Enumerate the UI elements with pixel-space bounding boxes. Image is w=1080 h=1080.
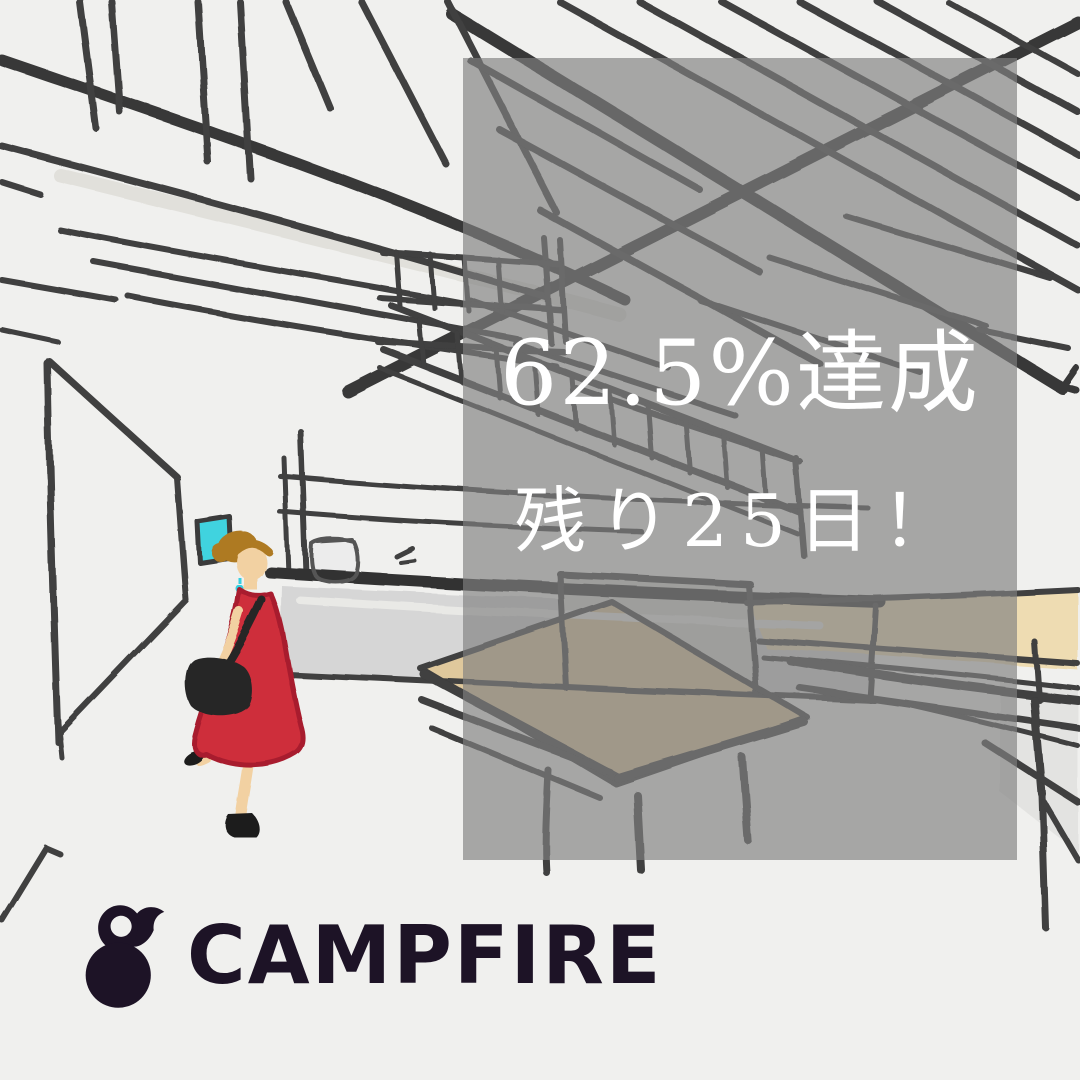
progress-achieved-text: 62.5%達成: [463, 324, 1017, 423]
left-wall: [2, 362, 186, 920]
campfire-logo: CAMPFIRE: [78, 900, 663, 1012]
shoe: [225, 813, 260, 837]
progress-overlay-panel: 62.5%達成 残り25日！: [463, 58, 1017, 860]
campfire-flame-icon: [78, 902, 170, 1010]
campaign-poster: 62.5%達成 残り25日！ CAMPFIRE: [0, 0, 1080, 1080]
days-remaining-text: 残り25日！: [463, 482, 1017, 561]
campfire-wordmark: CAMPFIRE: [187, 916, 663, 996]
